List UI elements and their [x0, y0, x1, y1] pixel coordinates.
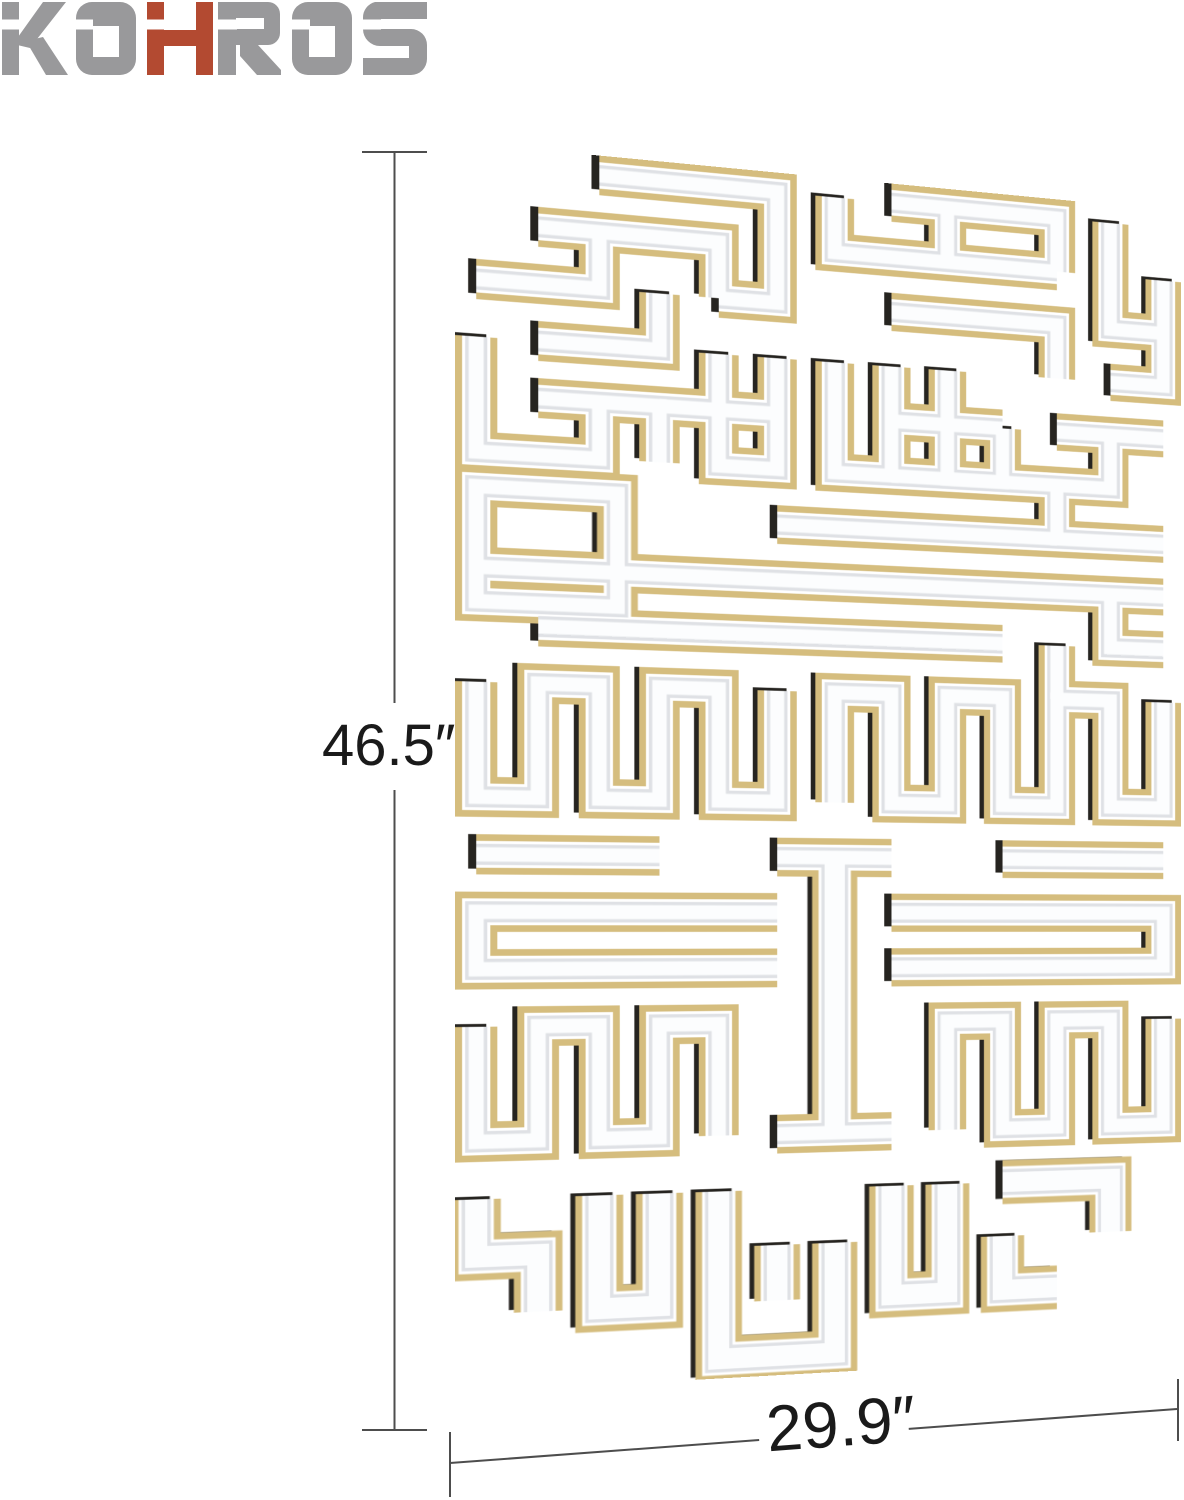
svg-text:29.9″: 29.9″ — [764, 1381, 919, 1465]
svg-text:46.5″: 46.5″ — [322, 713, 455, 778]
